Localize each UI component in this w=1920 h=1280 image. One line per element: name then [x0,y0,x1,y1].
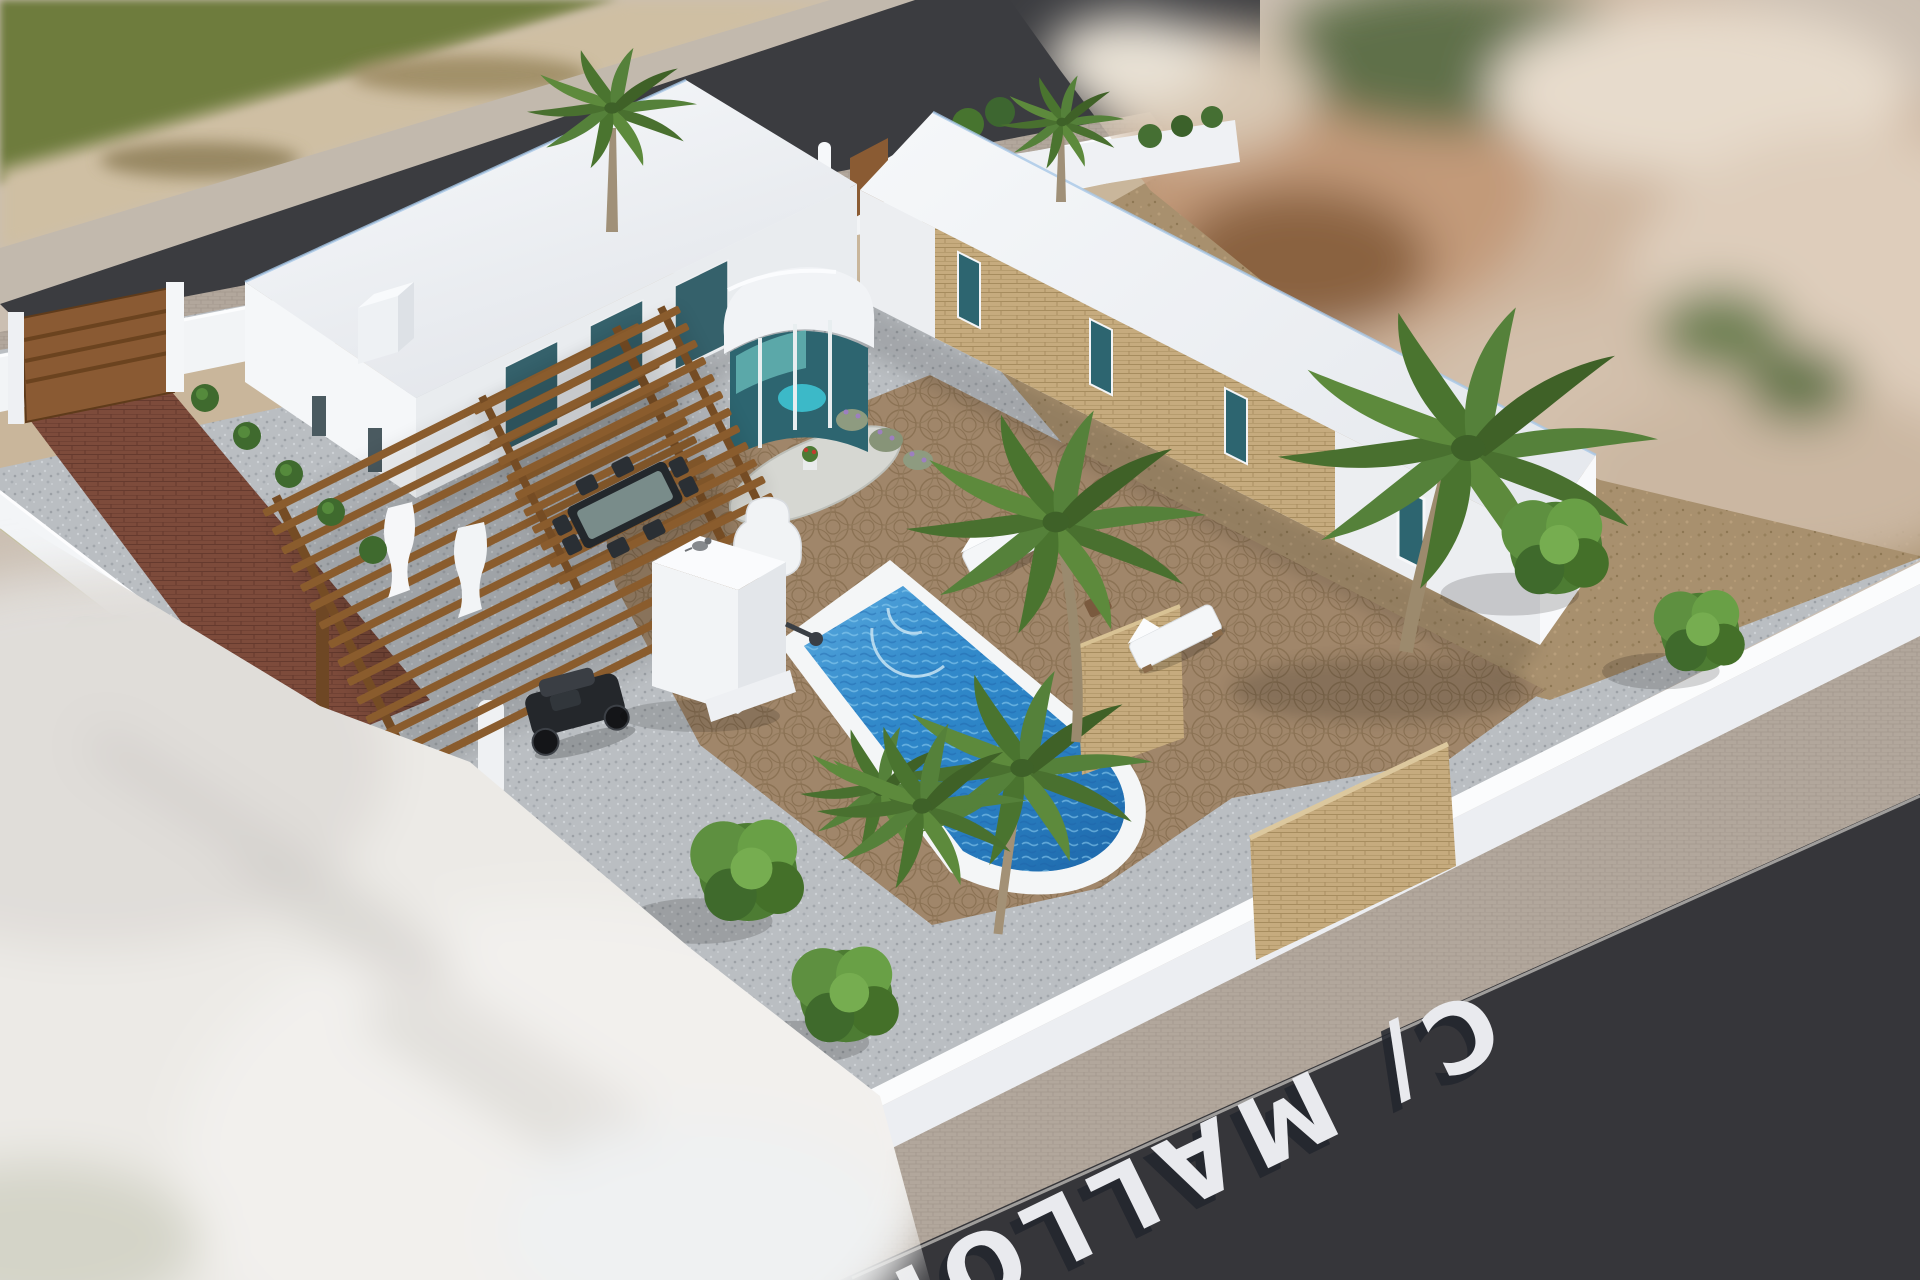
palm-shadow [1230,658,1530,722]
window-slit [958,252,980,328]
red-flower [804,448,808,452]
gate-post [166,282,184,392]
flower-plant [802,446,818,462]
shrub [280,464,292,476]
shrub [238,426,250,438]
architectural-render: C/ MALLORC C/ MALLORC [0,0,1920,1280]
shrub [359,536,387,564]
courtyard-shrub [1171,115,1193,137]
window-slit [1090,319,1112,395]
shrub [322,502,334,514]
render-canvas: C/ MALLORC C/ MALLORC [0,0,1920,1280]
gate-post [8,312,24,424]
courtyard-shrub [1201,106,1223,128]
lavender-bush [869,428,903,452]
courtyard-shrub [1138,124,1162,148]
window-slit [1225,388,1247,464]
lavender-bush [836,409,868,431]
interior-lounge-chair [778,384,826,412]
patio-bush [985,97,1015,127]
shrub [196,388,208,400]
end-window [312,396,326,436]
lavender-bush [903,450,933,470]
red-flower [812,450,816,454]
shower-head [809,632,823,646]
